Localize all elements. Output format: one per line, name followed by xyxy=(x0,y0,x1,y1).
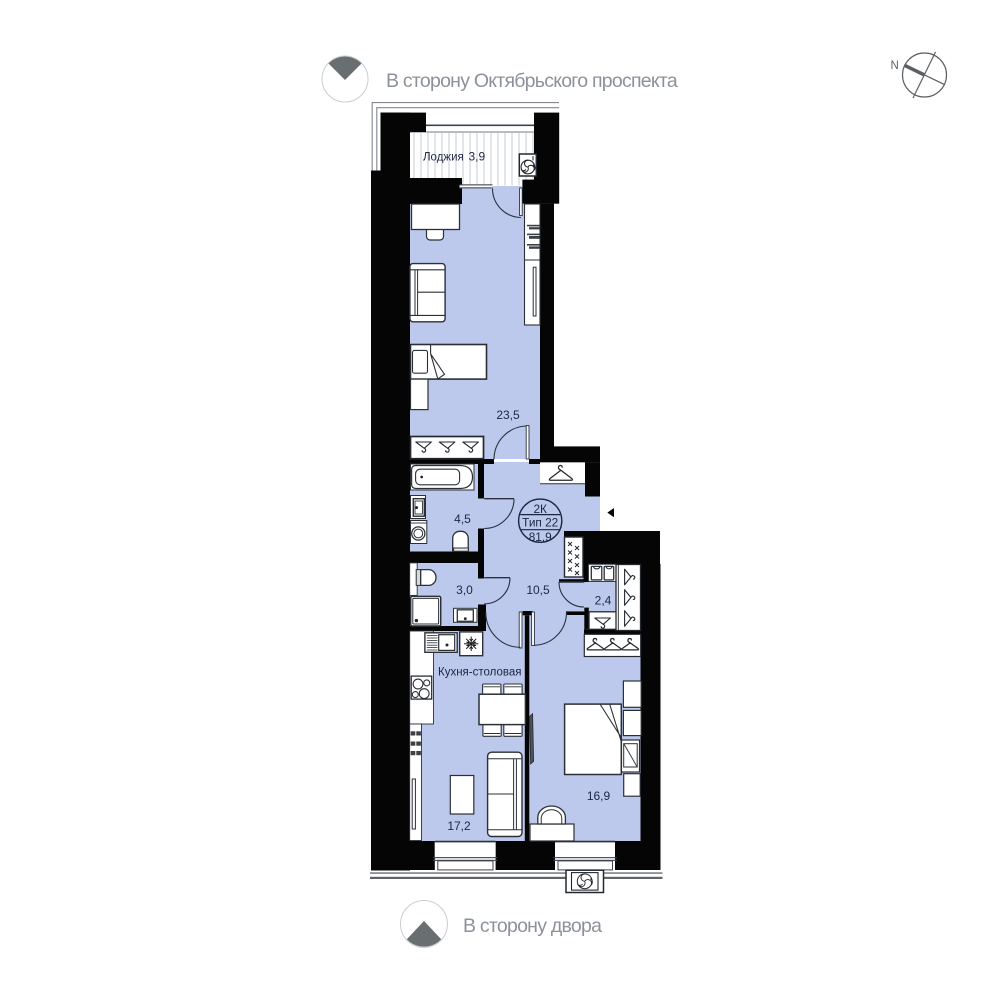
svg-text:В сторону Октябрьского проспек: В сторону Октябрьского проспекта xyxy=(386,70,678,92)
svg-text:Кухня-столовая: Кухня-столовая xyxy=(438,667,521,679)
svg-text:N: N xyxy=(891,60,899,72)
svg-text:Лоджия: Лоджия xyxy=(423,152,464,164)
svg-text:3,0: 3,0 xyxy=(456,583,473,597)
svg-text:4,5: 4,5 xyxy=(454,512,471,526)
svg-text:Тип 22: Тип 22 xyxy=(522,515,558,529)
svg-text:16,9: 16,9 xyxy=(587,789,611,803)
svg-text:23,5: 23,5 xyxy=(496,408,520,422)
svg-text:2К: 2К xyxy=(533,502,547,516)
svg-text:81,9: 81,9 xyxy=(529,530,552,544)
svg-text:10,5: 10,5 xyxy=(526,583,550,597)
svg-text:В сторону двора: В сторону двора xyxy=(463,915,602,937)
svg-text:3,9: 3,9 xyxy=(469,150,486,164)
svg-text:2,4: 2,4 xyxy=(595,594,612,608)
svg-text:17,2: 17,2 xyxy=(447,819,471,833)
